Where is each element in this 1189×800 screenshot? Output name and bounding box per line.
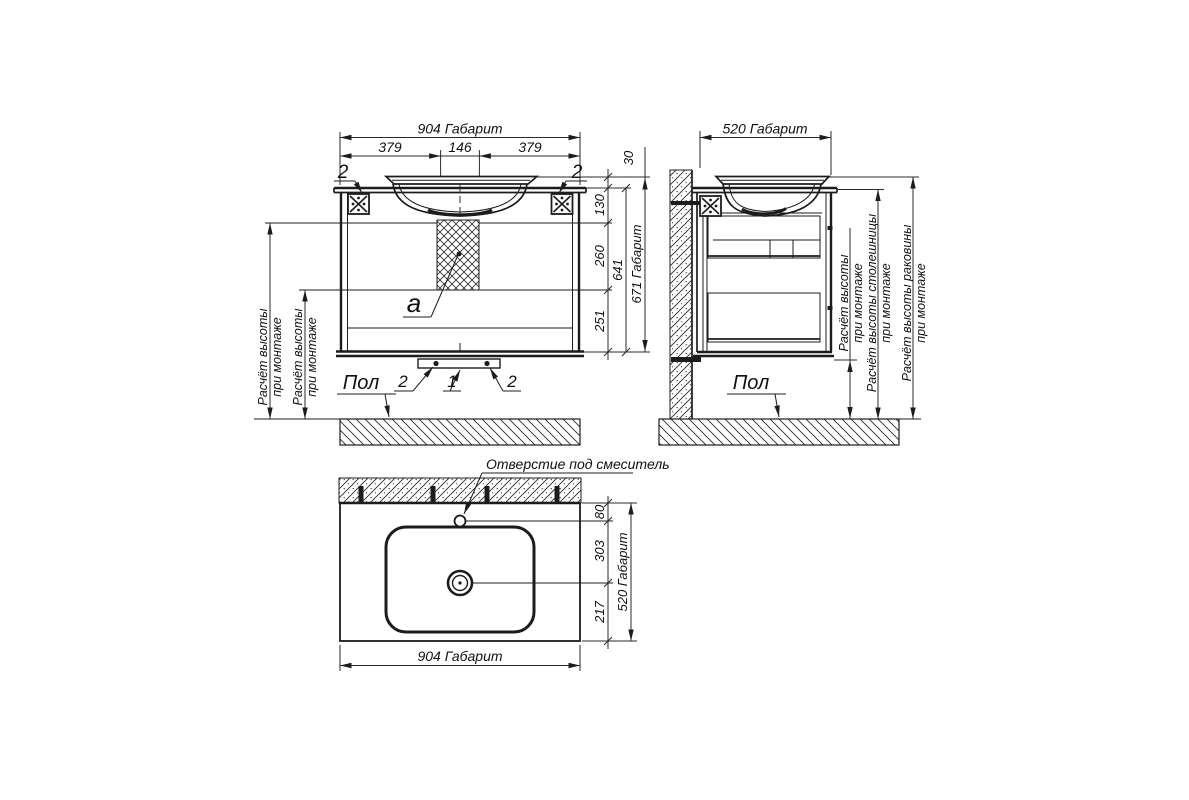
floor-label-side: Пол xyxy=(733,372,769,394)
front-dim-width: 904 Габарит 379 146 379 xyxy=(340,121,580,186)
foot-dot-left xyxy=(433,361,438,366)
dim-217: 217 xyxy=(592,600,607,623)
dim-379-left: 379 xyxy=(378,139,402,155)
front-mount-note2-l1: Расчёт высоты xyxy=(291,309,305,406)
front-view: a 904 Габарит 379 146 379 2 2 2 1 2 xyxy=(254,121,650,446)
top-view: Отверстие под смеситель 80 303 217 520 Г… xyxy=(339,456,670,671)
siphon-zone: a xyxy=(403,220,479,318)
dim-379-right: 379 xyxy=(518,139,542,155)
bracket-front-left xyxy=(348,194,369,214)
callout-2-bottom-right: 2 xyxy=(506,372,517,391)
side-note2-l1: Расчёт высоты столешницы xyxy=(865,214,879,392)
top-bracket-4 xyxy=(555,486,560,504)
front-floor xyxy=(254,419,580,445)
technical-drawing-vanity: a 904 Габарит 379 146 379 2 2 2 1 2 xyxy=(0,0,1189,800)
dim-641: 641 xyxy=(610,259,625,281)
side-note3-l1: Расчёт высоты раковины xyxy=(900,225,914,382)
callout-2-bottom-left: 2 xyxy=(397,372,408,391)
callout-2-top-right: 2 xyxy=(571,162,583,183)
front-floor-label: Пол xyxy=(337,372,396,417)
front-sink xyxy=(386,177,537,217)
front-mount-note1-l1: Расчёт высоты xyxy=(256,309,270,406)
dim-671: 671 Габарит xyxy=(629,224,644,303)
dim-260: 260 xyxy=(592,244,607,267)
front-callouts-bottom: 2 1 2 xyxy=(394,367,521,391)
wall-bolt-bottom xyxy=(671,357,701,362)
dim-251: 251 xyxy=(592,310,607,333)
dim-520-side: 520 Габарит xyxy=(722,121,807,137)
side-wall xyxy=(670,170,692,419)
detail-a-label: a xyxy=(407,288,421,318)
dim-904-front: 904 Габарит xyxy=(417,121,502,137)
dim-146: 146 xyxy=(448,139,472,155)
dim-80: 80 xyxy=(592,504,607,519)
side-floor xyxy=(659,419,921,445)
side-dim-depth: 520 Габарит xyxy=(700,121,831,176)
top-bracket-2 xyxy=(431,486,436,504)
side-sink xyxy=(716,177,829,217)
foot-dot-right xyxy=(484,361,489,366)
front-mount-note1-l2: при монтаже xyxy=(270,317,284,396)
side-note2-l2: при монтаже xyxy=(879,263,893,342)
top-dim-width: 904 Габарит xyxy=(340,645,580,671)
callout-1-bottom: 1 xyxy=(447,372,456,391)
drawing-canvas: a 904 Габарит 379 146 379 2 2 2 1 2 xyxy=(0,0,1189,800)
top-dim-depth: 80 303 217 520 Габарит xyxy=(582,496,637,649)
dim-130: 130 xyxy=(592,193,607,215)
top-wall xyxy=(339,478,581,504)
side-mount-dims: Расчёт высоты при монтаже Расчёт высоты … xyxy=(829,177,928,419)
bracket-side xyxy=(700,196,721,216)
side-floor-label: Пол xyxy=(727,372,786,417)
wall-bolt-top xyxy=(671,201,701,205)
dim-30: 30 xyxy=(621,150,636,165)
floor-label-front: Пол xyxy=(343,372,379,394)
bracket-front-right xyxy=(552,194,573,214)
top-bracket-3 xyxy=(485,486,490,504)
side-note1-l2: при монтаже xyxy=(851,263,865,342)
side-note1-l1: Расчёт высоты xyxy=(837,255,851,352)
dim-904-top: 904 Габарит xyxy=(417,648,502,664)
dim-303: 303 xyxy=(592,539,607,561)
dim-520-top: 520 Габарит xyxy=(615,532,630,611)
front-mount-dims: Расчёт высоты при монтаже Расчёт высоты … xyxy=(256,223,319,419)
front-plinth xyxy=(418,359,500,368)
side-view: 520 Габарит Расчёт высоты при монтаже Ра… xyxy=(659,121,928,446)
callout-2-top-left: 2 xyxy=(337,162,349,183)
front-mount-note2-l2: при монтаже xyxy=(305,317,319,396)
top-bracket-1 xyxy=(359,486,364,504)
faucet-hole-note: Отверстие под смеситель xyxy=(486,456,670,472)
side-note3-l2: при монтаже xyxy=(914,263,928,342)
